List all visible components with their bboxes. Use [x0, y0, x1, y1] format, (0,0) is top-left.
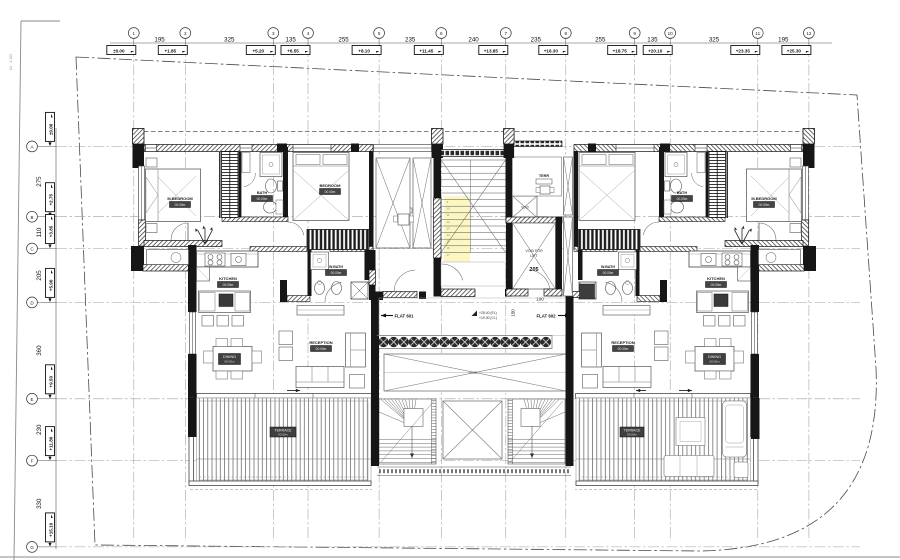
svg-text:00.00m: 00.00m	[331, 271, 342, 275]
svg-text:DINING: DINING	[223, 355, 236, 359]
svg-text:235: 235	[531, 36, 542, 43]
svg-text:17: 17	[447, 253, 451, 257]
svg-text:205: 205	[36, 270, 43, 281]
svg-text:BEDROOM: BEDROOM	[320, 183, 342, 188]
svg-text:+9.50: +9.50	[49, 376, 54, 388]
svg-text:255: 255	[595, 36, 606, 43]
svg-text:00.00m: 00.00m	[257, 197, 268, 201]
svg-text:3: 3	[272, 31, 275, 36]
svg-text:11: 11	[447, 213, 450, 217]
svg-text:13: 13	[447, 226, 451, 230]
svg-text:A3 · 1:100: A3 · 1:100	[9, 54, 13, 71]
svg-text:+16.30: +16.30	[544, 49, 559, 54]
svg-text:220: 220	[506, 250, 511, 258]
svg-text:M.BEDROOM: M.BEDROOM	[167, 196, 193, 201]
svg-text:135: 135	[285, 36, 296, 43]
svg-text:00.00m: 00.00m	[278, 433, 288, 437]
svg-text:15: 15	[447, 240, 451, 244]
svg-text:+23.35: +23.35	[736, 49, 751, 54]
svg-text:W.BATH: W.BATH	[329, 265, 343, 269]
svg-text:275: 275	[36, 176, 43, 187]
svg-text:00.00m: 00.00m	[603, 271, 614, 275]
svg-text:00.00m: 00.00m	[224, 360, 235, 364]
svg-text:DINING: DINING	[708, 355, 721, 359]
svg-text:195: 195	[154, 36, 165, 43]
svg-text:+1.85: +1.85	[164, 49, 176, 54]
svg-text:16: 16	[447, 246, 451, 250]
svg-text:150: 150	[511, 309, 516, 317]
svg-text:B: B	[30, 215, 33, 220]
svg-text:M.BEDROOM: M.BEDROOM	[751, 196, 777, 201]
svg-text:+18.75: +18.75	[613, 49, 628, 54]
svg-text:BATH: BATH	[257, 191, 268, 195]
svg-text:00.00m: 00.00m	[316, 347, 327, 351]
svg-text:00.00m: 00.00m	[325, 190, 336, 194]
svg-text:6: 6	[440, 31, 443, 36]
svg-text:195: 195	[778, 36, 789, 43]
svg-text:+6.55: +6.55	[287, 49, 299, 54]
svg-text:FLAT 602: FLAT 602	[536, 314, 556, 319]
svg-text:+11.80: +11.80	[49, 436, 54, 450]
svg-text:F: F	[31, 459, 34, 464]
svg-text:8: 8	[565, 31, 568, 36]
svg-text:KITCHEN: KITCHEN	[707, 276, 725, 281]
svg-text:±0.00: ±0.00	[113, 49, 125, 54]
svg-text:235: 235	[405, 36, 416, 43]
svg-text:+15.10: +15.10	[49, 522, 54, 537]
svg-text:+13.85: +13.85	[484, 49, 499, 54]
svg-text:+28.40 (EL): +28.40 (EL)	[479, 311, 497, 315]
svg-text:110: 110	[36, 227, 43, 237]
svg-text:135: 135	[647, 36, 658, 43]
svg-text:+19.30 (CL): +19.30 (CL)	[479, 316, 497, 320]
svg-text:+8.10: +8.10	[358, 49, 370, 54]
svg-text:12: 12	[447, 220, 451, 224]
svg-text:325: 325	[709, 36, 720, 43]
svg-text:FLAT 601: FLAT 601	[394, 314, 414, 319]
svg-text:00.00m: 00.00m	[677, 197, 688, 201]
svg-text:00.00m: 00.00m	[618, 347, 629, 351]
svg-text:10: 10	[447, 207, 451, 211]
svg-text:4: 4	[307, 31, 310, 36]
svg-text:E: E	[30, 397, 33, 402]
svg-text:RECEPTION: RECEPTION	[611, 340, 634, 345]
svg-text:LIFT: LIFT	[530, 254, 538, 258]
svg-text:VOID: VOID	[469, 371, 478, 375]
svg-text:BATH: BATH	[677, 191, 688, 195]
svg-text:9: 9	[633, 31, 636, 36]
svg-text:00.00m: 00.00m	[627, 433, 637, 437]
svg-text:12: 12	[806, 31, 812, 36]
svg-text:1: 1	[133, 31, 136, 36]
svg-text:W.BATH: W.BATH	[601, 265, 615, 269]
svg-text:230: 230	[36, 424, 43, 435]
svg-text:14: 14	[447, 233, 451, 237]
svg-text:240: 240	[468, 36, 479, 43]
svg-text:VOID: VOID	[521, 206, 529, 210]
svg-text:+3.85: +3.85	[49, 225, 54, 237]
svg-text:±0.00: ±0.00	[48, 123, 53, 135]
svg-text:00.00m: 00.00m	[709, 360, 720, 364]
svg-text:255: 255	[338, 36, 349, 43]
svg-text:G: G	[30, 545, 34, 550]
svg-text:VOID FOR: VOID FOR	[525, 249, 543, 253]
svg-text:330: 330	[36, 498, 43, 509]
svg-text:00.00m: 00.00m	[175, 203, 186, 207]
svg-text:5: 5	[378, 31, 381, 36]
svg-text:360: 360	[36, 345, 43, 356]
svg-text:00.00m: 00.00m	[759, 203, 770, 207]
svg-text:2: 2	[184, 31, 187, 36]
svg-text:+2.75: +2.75	[49, 193, 54, 205]
svg-text:100: 100	[536, 297, 544, 302]
svg-text:KITCHEN: KITCHEN	[219, 276, 237, 281]
svg-text:00.00m: 00.00m	[223, 283, 234, 287]
svg-text:+25.30: +25.30	[787, 49, 802, 54]
svg-text:325: 325	[224, 36, 235, 43]
svg-text:7: 7	[505, 31, 508, 36]
svg-text:+11.45: +11.45	[419, 49, 433, 54]
svg-text:+5.20: +5.20	[252, 49, 264, 54]
svg-text:10: 10	[668, 31, 674, 36]
svg-text:+5.90: +5.90	[49, 279, 54, 291]
svg-text:TERR: TERR	[539, 174, 550, 178]
svg-text:11: 11	[755, 31, 760, 36]
svg-text:00.00m: 00.00m	[711, 283, 722, 287]
svg-text:+20.10: +20.10	[648, 49, 663, 54]
svg-text:RECEPTION: RECEPTION	[309, 340, 332, 345]
